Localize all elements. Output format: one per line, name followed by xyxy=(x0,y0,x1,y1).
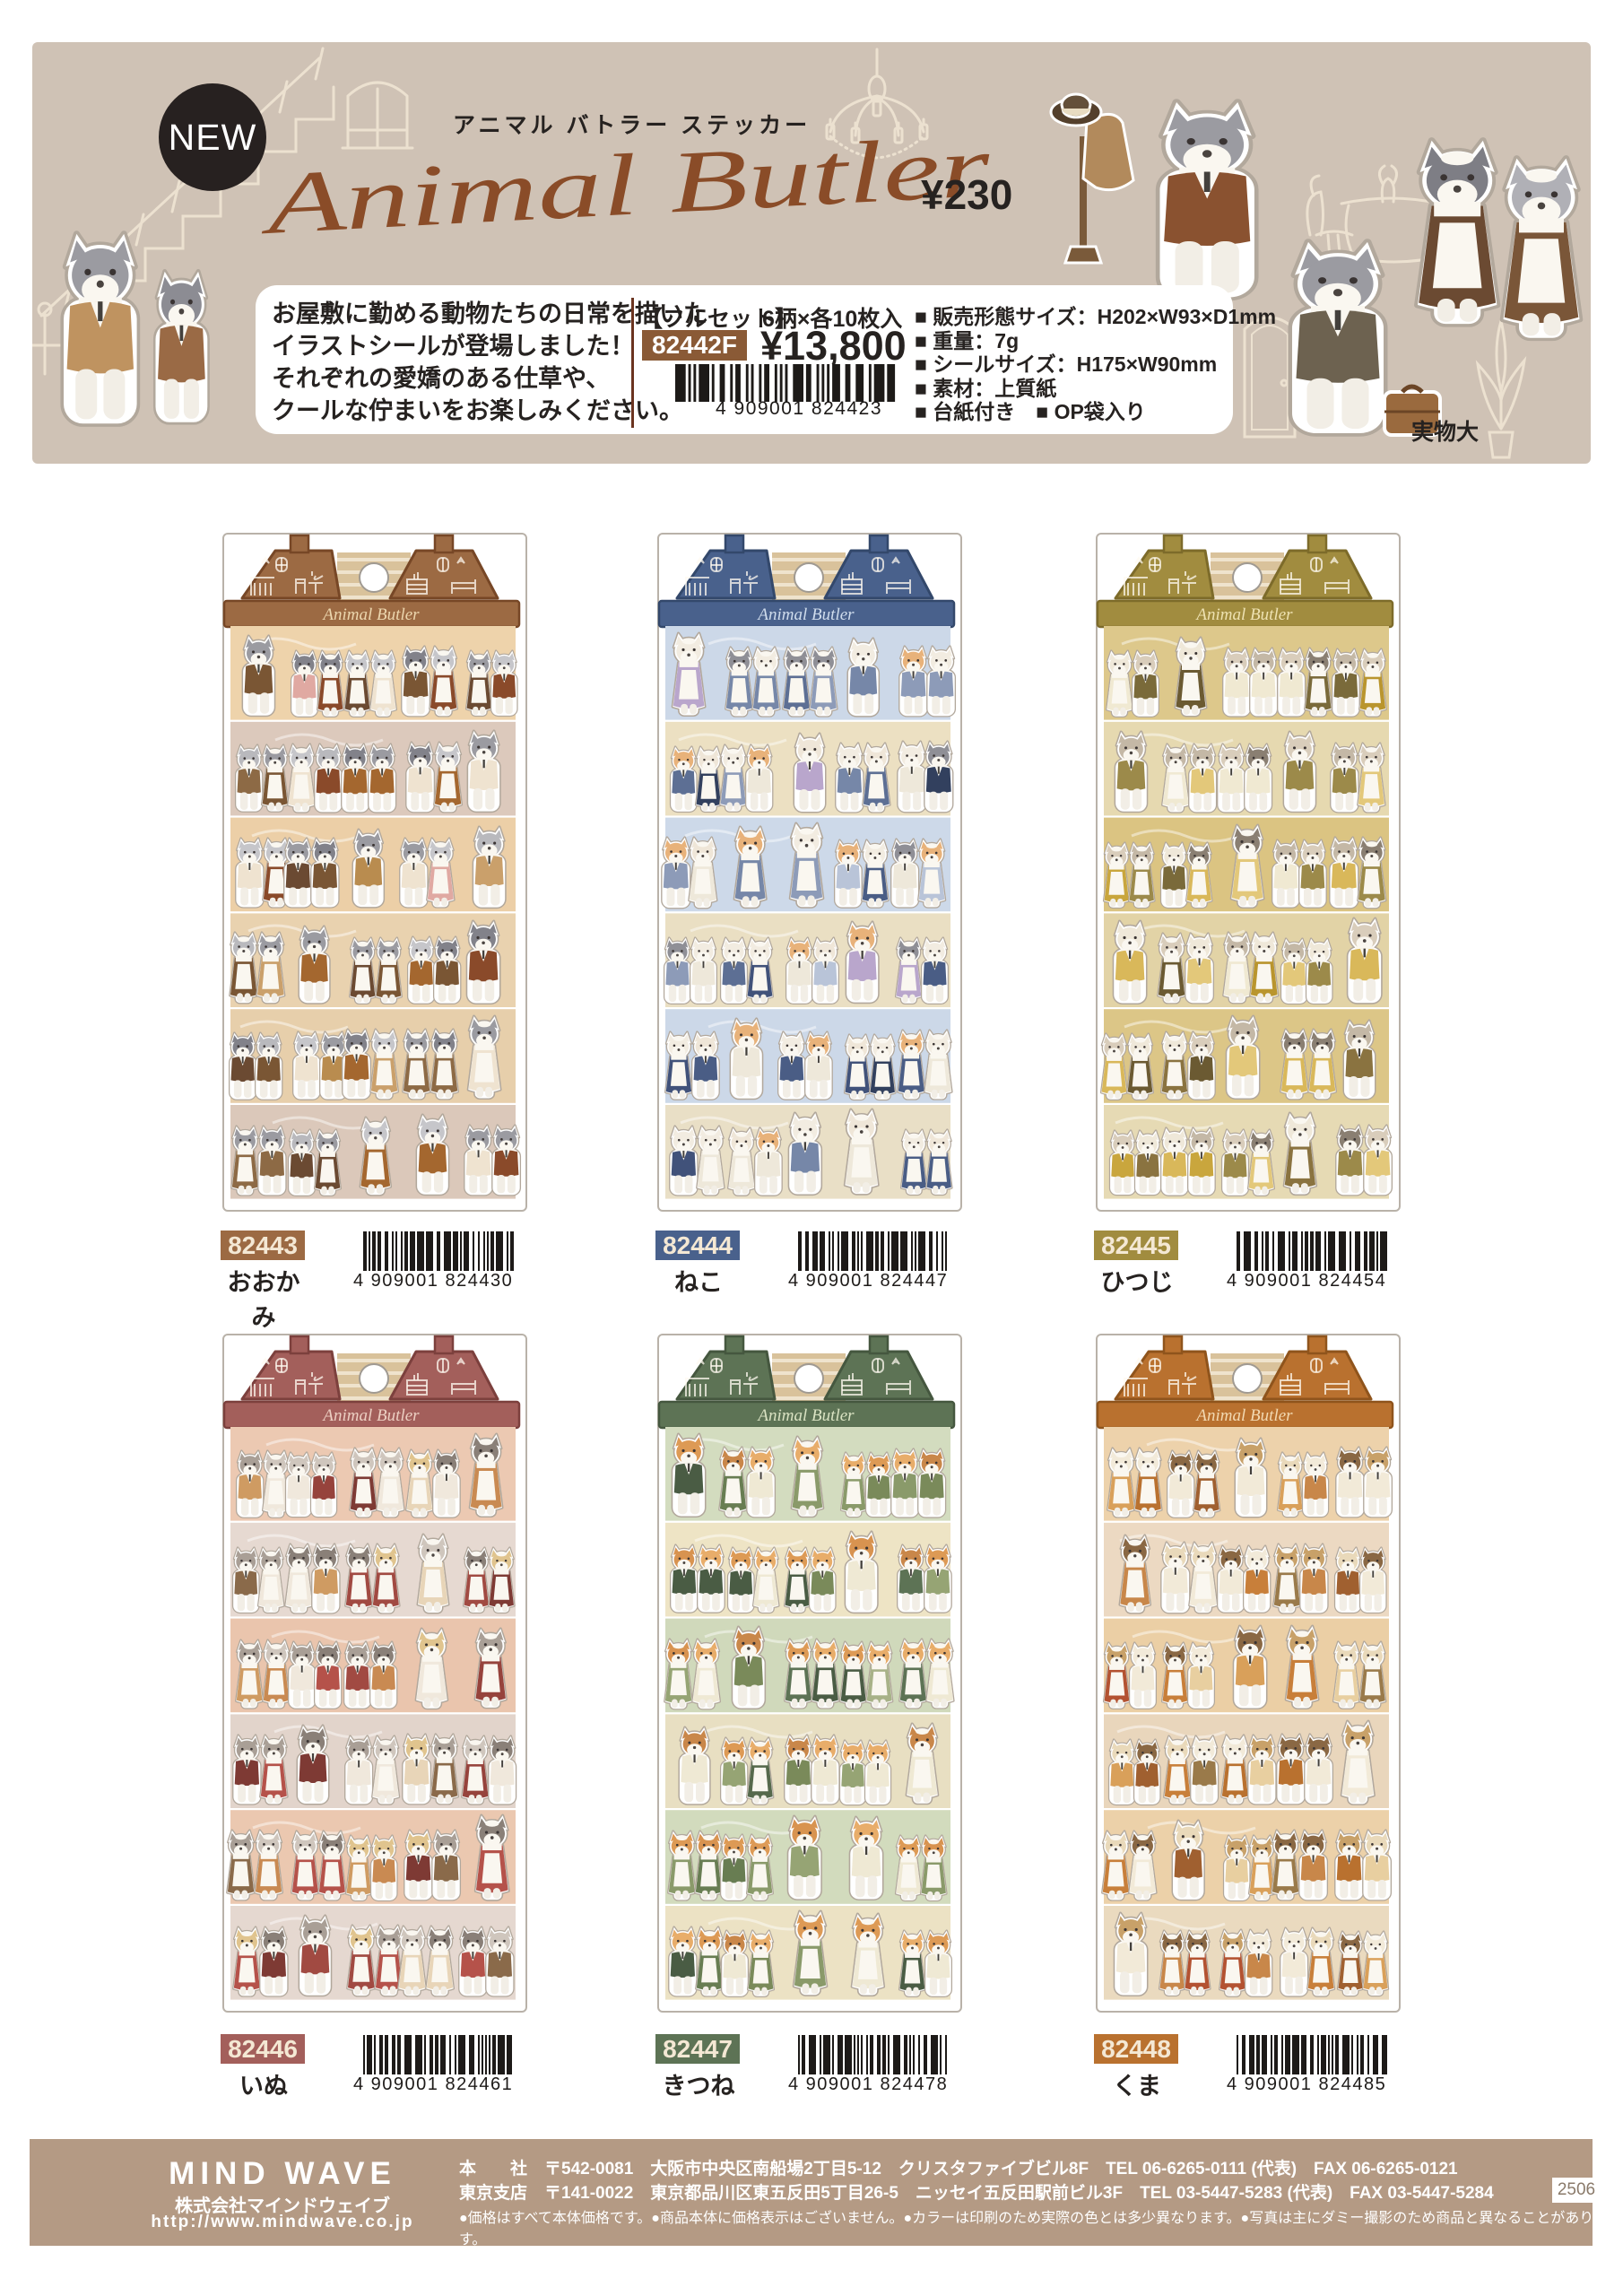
svg-text:NEW: NEW xyxy=(169,117,257,158)
svg-text:Animal Butler: Animal Butler xyxy=(321,605,420,624)
svg-text:Animal Butler: Animal Butler xyxy=(756,1406,855,1425)
svg-text:Animal Butler: Animal Butler xyxy=(1194,1406,1293,1425)
svg-text:Animal Butler: Animal Butler xyxy=(1194,605,1293,624)
svg-text:Animal Butler: Animal Butler xyxy=(756,605,855,624)
svg-text:Animal Butler: Animal Butler xyxy=(321,1406,420,1425)
